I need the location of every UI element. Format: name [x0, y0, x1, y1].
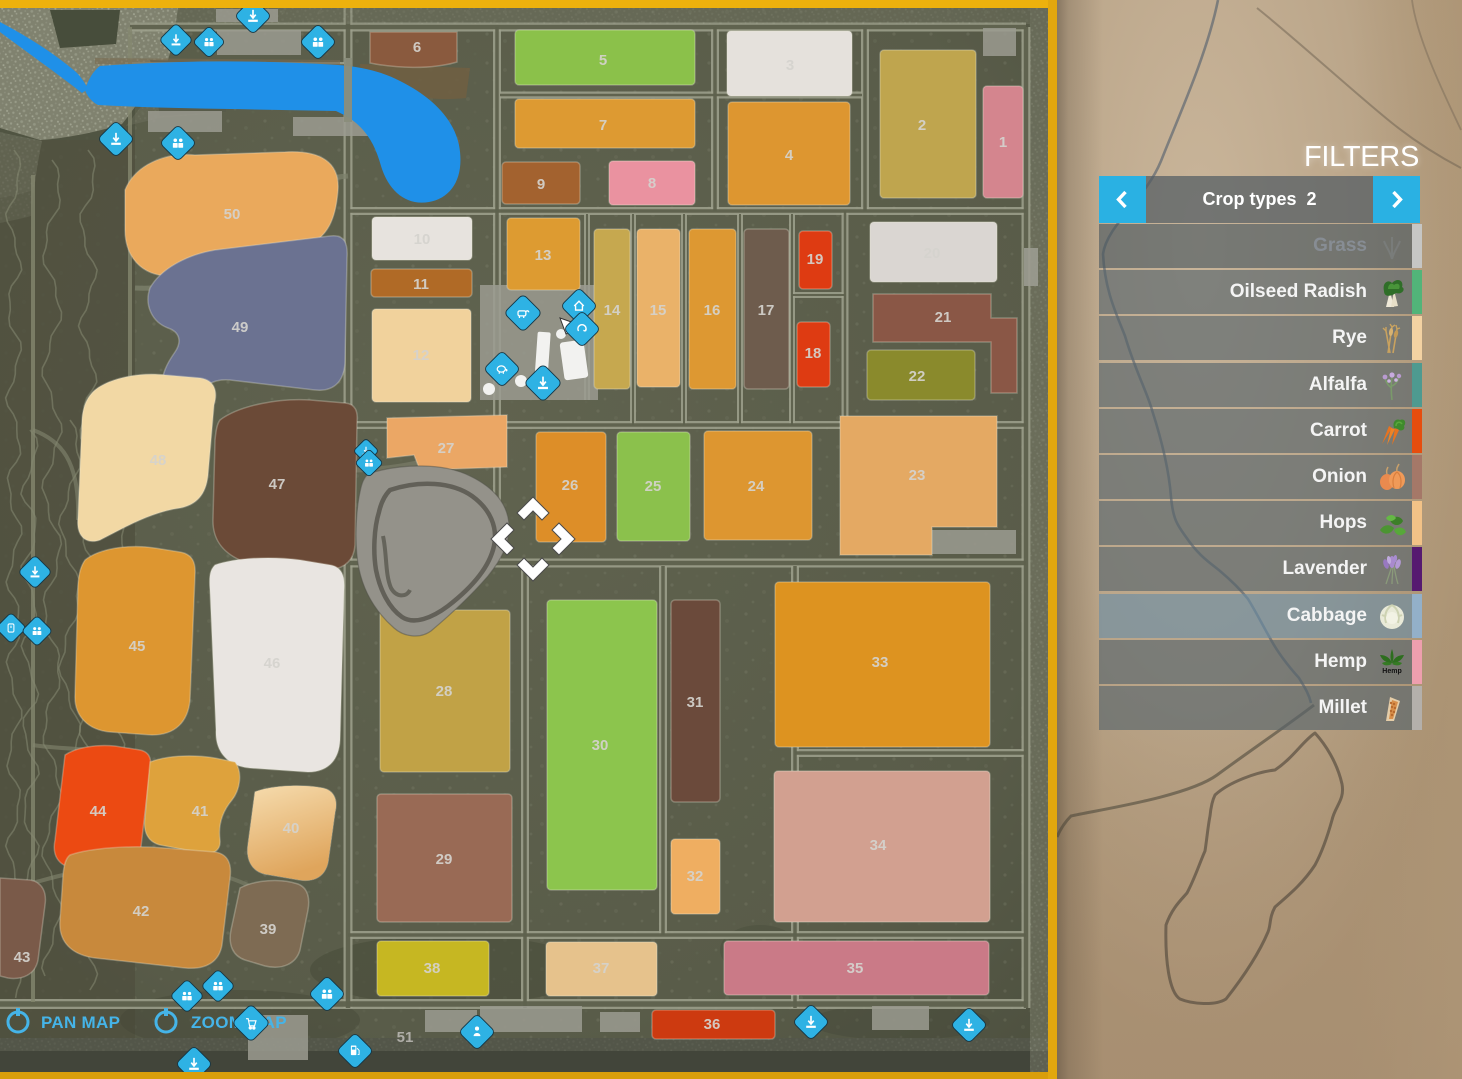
svg-text:14: 14: [604, 302, 621, 319]
svg-text:37: 37: [593, 960, 610, 977]
svg-text:32: 32: [687, 868, 704, 885]
svg-text:2: 2: [918, 117, 926, 134]
svg-text:16: 16: [704, 302, 721, 319]
svg-text:38: 38: [424, 960, 441, 977]
svg-text:1: 1: [999, 134, 1007, 151]
svg-text:29: 29: [436, 851, 453, 868]
svg-text:9: 9: [537, 176, 545, 193]
svg-text:10: 10: [414, 231, 431, 248]
svg-text:PAN MAP: PAN MAP: [41, 1013, 120, 1032]
svg-text:25: 25: [645, 478, 662, 495]
svg-text:17: 17: [758, 302, 775, 319]
svg-text:48: 48: [150, 452, 167, 469]
svg-text:39: 39: [260, 921, 277, 938]
svg-text:21: 21: [935, 309, 952, 326]
svg-text:30: 30: [592, 737, 609, 754]
svg-text:43: 43: [14, 949, 31, 966]
svg-text:15: 15: [650, 302, 667, 319]
svg-text:44: 44: [90, 803, 107, 820]
svg-text:45: 45: [129, 638, 146, 655]
svg-text:49: 49: [232, 319, 249, 336]
svg-text:24: 24: [748, 478, 765, 495]
svg-text:8: 8: [648, 175, 656, 192]
svg-text:33: 33: [872, 654, 889, 671]
svg-text:11: 11: [413, 276, 429, 293]
svg-text:46: 46: [264, 655, 281, 672]
svg-text:Hemp: Hemp: [1382, 668, 1401, 675]
svg-text:20: 20: [924, 245, 941, 262]
svg-text:31: 31: [687, 694, 704, 711]
svg-text:50: 50: [224, 206, 241, 223]
svg-text:34: 34: [870, 837, 887, 854]
svg-text:12: 12: [413, 347, 430, 364]
svg-text:5: 5: [599, 52, 607, 69]
svg-text:35: 35: [847, 960, 864, 977]
svg-text:18: 18: [805, 345, 822, 362]
svg-text:26: 26: [562, 477, 579, 494]
svg-text:3: 3: [786, 57, 794, 74]
svg-text:47: 47: [269, 476, 286, 493]
svg-text:13: 13: [535, 247, 552, 264]
svg-text:41: 41: [192, 803, 209, 820]
svg-text:27: 27: [438, 440, 455, 457]
svg-text:22: 22: [909, 368, 926, 385]
svg-text:4: 4: [785, 147, 794, 164]
svg-text:42: 42: [133, 903, 150, 920]
svg-text:40: 40: [283, 820, 300, 837]
svg-text:19: 19: [807, 251, 824, 268]
svg-text:7: 7: [599, 117, 607, 134]
svg-text:36: 36: [704, 1016, 721, 1033]
svg-text:51: 51: [397, 1029, 414, 1046]
svg-text:28: 28: [436, 683, 453, 700]
svg-text:23: 23: [909, 467, 926, 484]
svg-text:6: 6: [413, 39, 421, 56]
